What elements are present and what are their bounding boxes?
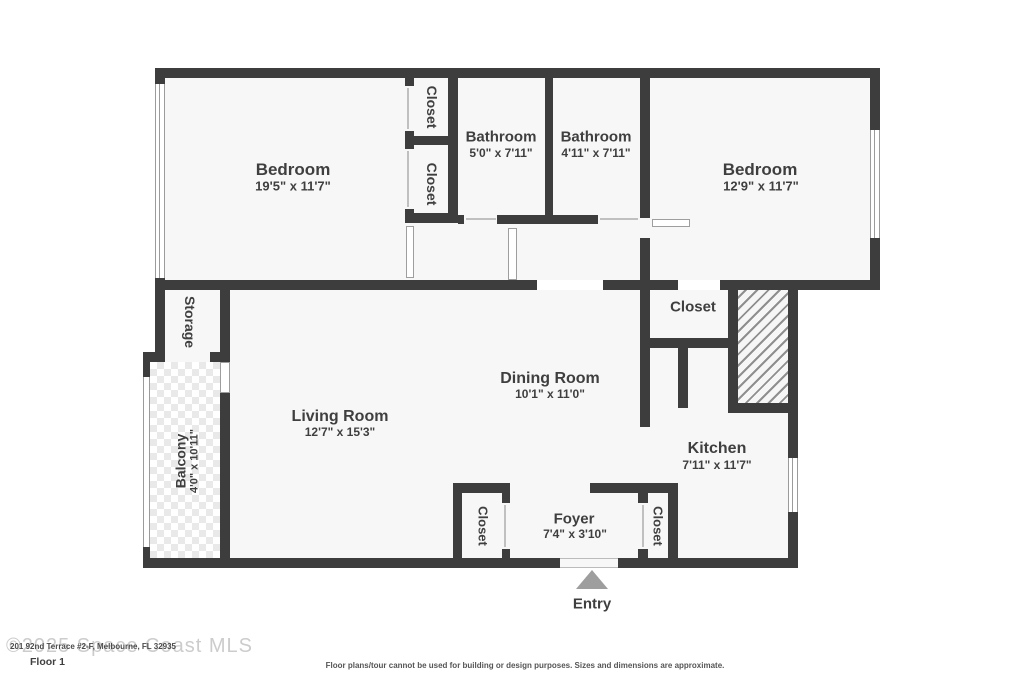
room-dims-living-room: 12'7" x 15'3" xyxy=(305,426,375,440)
door xyxy=(466,218,496,220)
wall xyxy=(545,68,553,224)
wall xyxy=(155,68,165,84)
door xyxy=(406,226,414,278)
wall xyxy=(640,68,650,218)
door xyxy=(508,228,517,280)
wall xyxy=(603,280,678,290)
wall xyxy=(458,215,464,224)
wall xyxy=(143,558,560,568)
door xyxy=(642,505,644,547)
entry-arrow-icon xyxy=(576,570,608,589)
wall xyxy=(640,290,650,427)
storage-opening xyxy=(165,352,210,362)
wall xyxy=(502,549,510,558)
entry-label: Entry xyxy=(573,595,611,612)
balcony-railing xyxy=(143,377,150,547)
wall xyxy=(590,483,678,493)
room-label-closet-foyer-right: Closet xyxy=(650,506,665,546)
room-dims-bathroom-right: 4'11" x 7'11" xyxy=(561,147,630,161)
wall xyxy=(453,483,510,493)
room-label-closet-bedroom-right: Closet xyxy=(670,298,716,315)
wall xyxy=(405,131,414,149)
room-label-dining-room: Dining Room xyxy=(500,370,600,388)
room-label-foyer: Foyer xyxy=(554,510,595,527)
wall xyxy=(448,68,458,223)
room-label-balcony: Balcony 4'0" x 10'11" xyxy=(173,429,202,493)
disclaimer-text: Floor plans/tour cannot be used for buil… xyxy=(326,661,725,670)
wall xyxy=(668,483,678,558)
wall xyxy=(155,290,165,352)
wall xyxy=(650,338,738,348)
door xyxy=(407,88,409,129)
wall xyxy=(220,290,230,352)
wall xyxy=(638,549,648,558)
wall xyxy=(143,352,165,362)
wall xyxy=(220,393,230,558)
room-label-closet-foyer-left: Closet xyxy=(475,506,490,546)
address-text: 201 92nd Terrace #2-F, Melbourne, FL 329… xyxy=(10,642,176,651)
wall xyxy=(453,493,462,558)
room-label-bathroom-left: Bathroom xyxy=(466,128,537,145)
wall xyxy=(155,280,537,290)
room-dims-bedroom-left: 19'5" x 11'7" xyxy=(255,180,331,195)
wall xyxy=(155,68,880,78)
floor-plan: Bedroom 19'5" x 11'7" Closet Closet Bath… xyxy=(0,0,1024,683)
wall xyxy=(618,558,798,568)
door xyxy=(652,219,690,227)
room-label-balcony-name: Balcony xyxy=(173,429,189,493)
wall xyxy=(405,78,414,86)
wall xyxy=(638,493,648,503)
wall xyxy=(210,352,230,362)
wall xyxy=(728,283,738,413)
room-dims-kitchen: 7'11" x 11'7" xyxy=(682,459,751,473)
room-label-bedroom-left: Bedroom xyxy=(256,160,331,180)
wall xyxy=(502,493,510,503)
wall xyxy=(870,68,880,130)
wall xyxy=(788,290,798,458)
room-dims-foyer: 7'4" x 3'10" xyxy=(543,528,607,542)
wall xyxy=(143,362,150,377)
room-dims-dining-room: 10'1" x 11'0" xyxy=(515,388,585,402)
door xyxy=(407,151,409,207)
room-label-living-room: Living Room xyxy=(292,408,389,426)
door xyxy=(504,505,506,547)
wall xyxy=(497,215,545,224)
window xyxy=(870,130,880,238)
room-dims-bedroom-right: 12'9" x 11'7" xyxy=(723,180,799,195)
window xyxy=(155,84,165,278)
room-dims-balcony: 4'0" x 10'11" xyxy=(189,429,202,493)
hatched-shaft xyxy=(738,288,788,403)
entry-opening xyxy=(560,558,618,568)
room-label-bathroom-right: Bathroom xyxy=(561,128,632,145)
wall xyxy=(553,215,598,224)
door xyxy=(600,218,638,220)
room-label-kitchen: Kitchen xyxy=(688,440,747,458)
wall xyxy=(678,348,688,408)
room-label-closet-top-a: Closet xyxy=(424,86,440,129)
balcony-door xyxy=(220,362,230,393)
floor-label: Floor 1 xyxy=(30,656,65,668)
room-label-closet-top-b: Closet xyxy=(424,163,440,206)
room-label-storage: Storage xyxy=(182,296,198,348)
wall xyxy=(414,136,450,145)
wall xyxy=(720,280,880,290)
wall xyxy=(405,213,458,223)
window xyxy=(788,458,798,512)
room-dims-bathroom-left: 5'0" x 7'11" xyxy=(469,147,532,161)
room-label-bedroom-right: Bedroom xyxy=(723,160,798,180)
